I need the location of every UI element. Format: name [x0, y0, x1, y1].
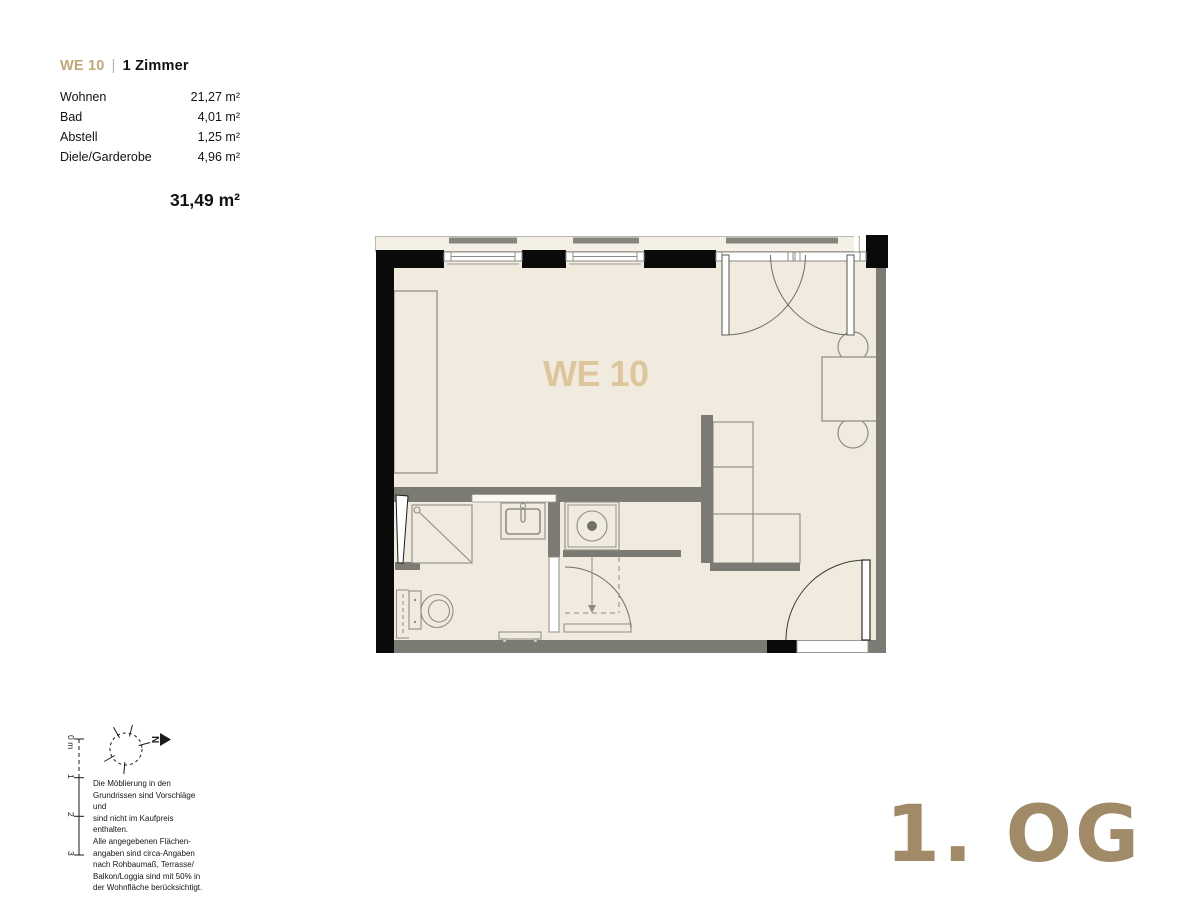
wardrobe-base-wall — [710, 563, 800, 571]
disclaimer-line: Grundrissen sind Vorschläge und — [93, 790, 205, 813]
room-row: Wohnen 21,27 m² — [60, 87, 240, 107]
room-area: 21,27 m² — [191, 87, 240, 107]
floorplan-page: WE 10 | 1 Zimmer Wohnen 21,27 m² Bad 4,0… — [0, 0, 1200, 920]
north-letter: N — [149, 736, 160, 743]
room-label: Diele/Garderobe — [60, 147, 152, 167]
unit-type: 1 Zimmer — [123, 58, 189, 74]
north-arrow-circle — [110, 733, 142, 765]
north-arrow-ticks — [104, 725, 150, 774]
disclaimer-line: Die Möblierung in den — [93, 778, 205, 790]
disclaimer-line: nach Rohbaumaß, Terrasse/ — [93, 859, 205, 871]
floor-plan-drawing — [375, 233, 888, 653]
washing-machine — [565, 502, 619, 550]
scale-label-1: 1 — [66, 774, 76, 779]
disclaimer-text: Die Möblierung in den Grundrissen sind V… — [93, 778, 205, 894]
disclaimer-line: Balkon/Loggia sind mit 50% in — [93, 871, 205, 883]
unit-legend: WE 10 | 1 Zimmer Wohnen 21,27 m² Bad 4,0… — [60, 57, 240, 211]
scale-label-0m: 0 m — [66, 735, 76, 749]
room-area: 4,96 m² — [198, 147, 240, 167]
total-area: 31,49 m² — [60, 190, 240, 211]
bathroom-mirror — [472, 495, 556, 503]
room-label: Wohnen — [60, 87, 106, 107]
disclaimer-line: der Wohnfläche berücksichtigt. — [93, 882, 205, 894]
disclaimer-line: Alle angegebenen Flächen- — [93, 836, 205, 848]
apartment-floor — [377, 250, 886, 653]
unit-id: WE 10 — [60, 58, 105, 74]
plan-unit-label: WE 10 — [543, 353, 649, 395]
room-row: Bad 4,01 m² — [60, 107, 240, 127]
room-row: Abstell 1,25 m² — [60, 127, 240, 147]
room-row: Diele/Garderobe 4,96 m² — [60, 147, 240, 167]
north-arrow: N — [100, 722, 185, 784]
shower — [412, 505, 472, 563]
dining-table — [822, 357, 878, 421]
room-area: 1,25 m² — [198, 127, 240, 147]
scale-label-2: 2 — [66, 812, 76, 817]
title-separator: | — [105, 57, 123, 74]
floor-level-label: 1. OG — [880, 790, 1142, 880]
bed — [394, 291, 437, 473]
room-label: Abstell — [60, 127, 98, 147]
scale-label-3: 3 — [66, 851, 76, 856]
balcony-slab — [376, 236, 860, 252]
disclaimer-line: sind nicht im Kaufpreis enthalten. — [93, 813, 205, 836]
room-label: Bad — [60, 107, 82, 127]
room-area-list: Wohnen 21,27 m² Bad 4,01 m² Abstell 1,25… — [60, 87, 240, 167]
disclaimer-line: angaben sind circa-Angaben — [93, 848, 205, 860]
room-area: 4,01 m² — [198, 107, 240, 127]
floor-plan: WE 10 — [375, 233, 888, 653]
north-triangle — [160, 733, 171, 746]
unit-title: WE 10 | 1 Zimmer — [60, 57, 240, 74]
washbasin — [501, 503, 545, 539]
